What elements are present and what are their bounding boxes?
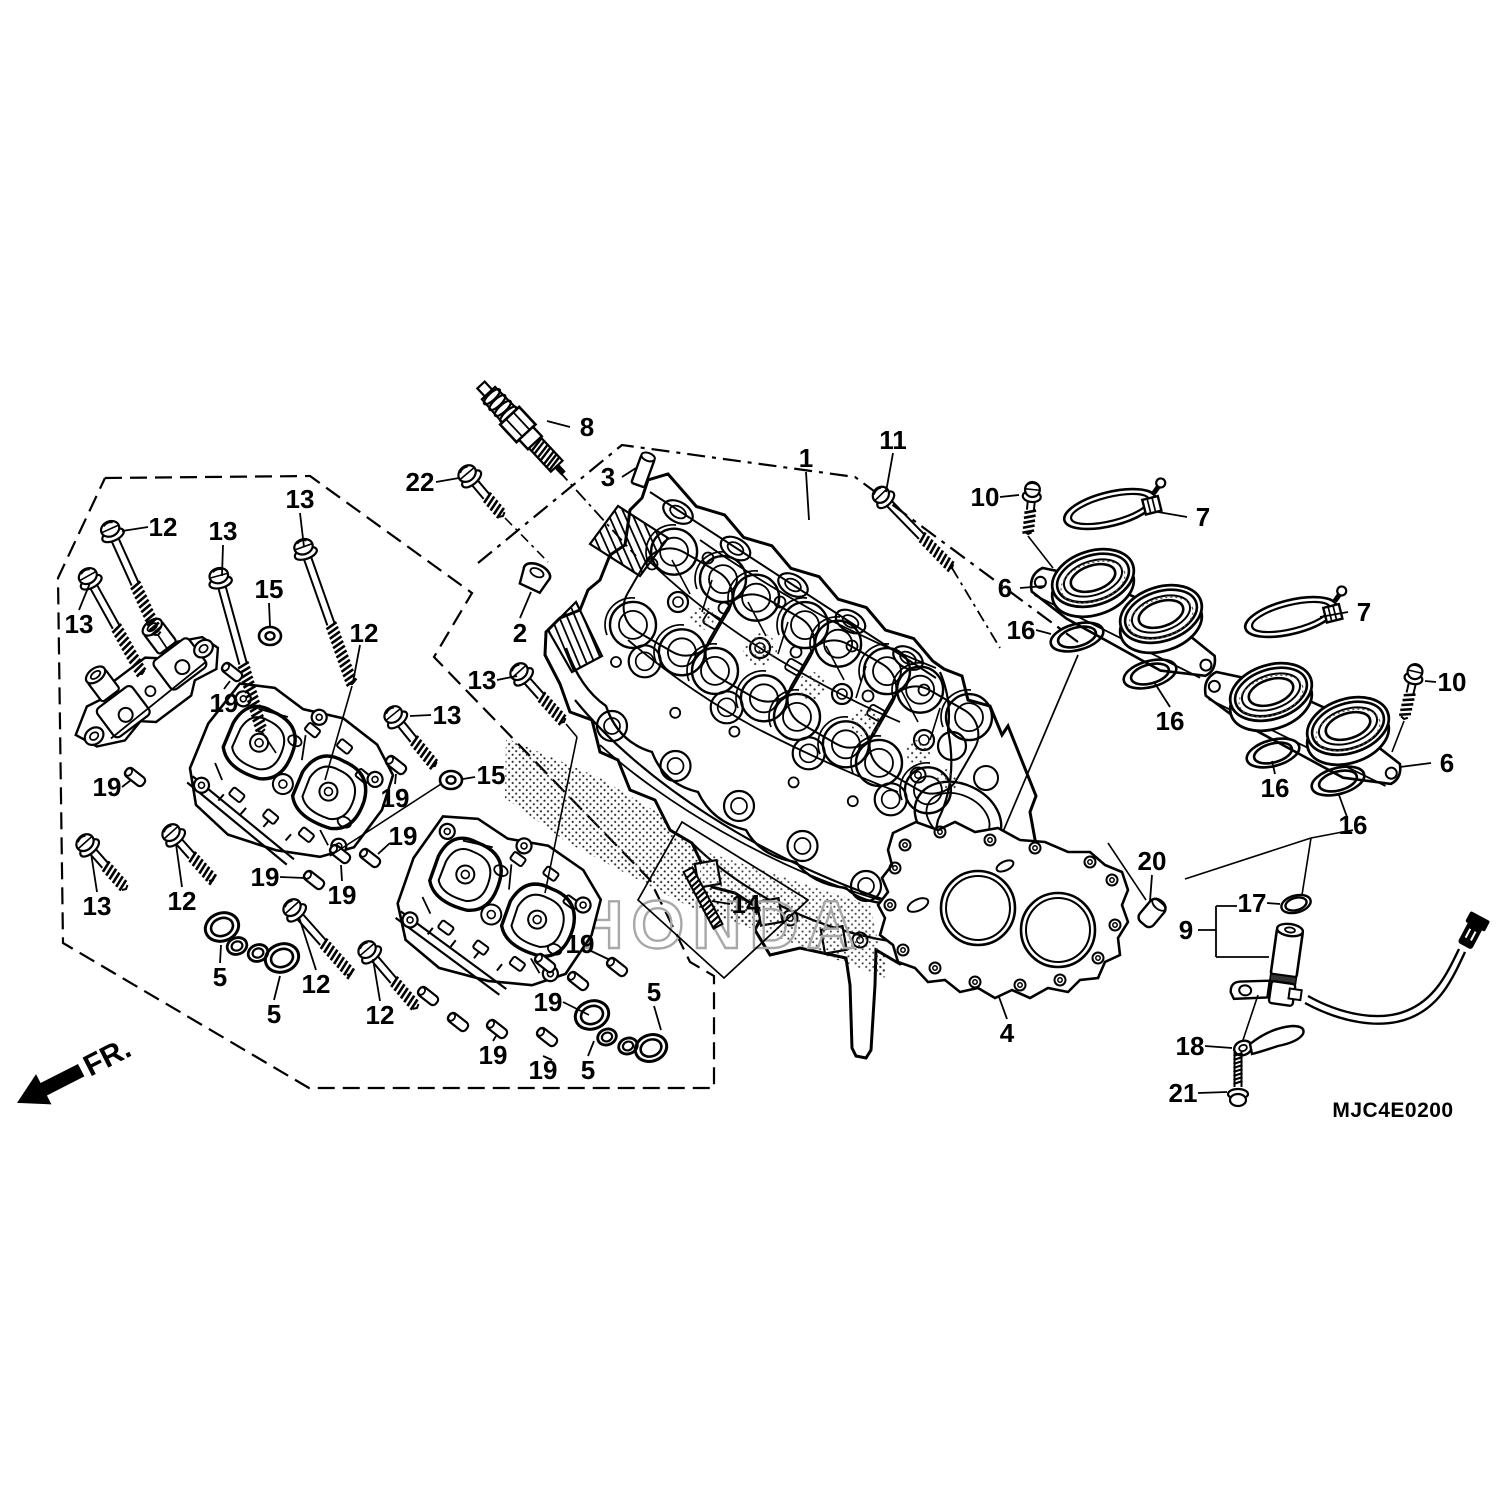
svg-text:MJC4E0200: MJC4E0200 (1332, 1099, 1453, 1122)
svg-text:19: 19 (529, 1055, 558, 1085)
svg-text:19: 19 (389, 821, 418, 851)
svg-text:13: 13 (209, 516, 238, 546)
svg-text:9: 9 (1179, 915, 1193, 945)
svg-text:8: 8 (580, 412, 594, 442)
svg-text:12: 12 (168, 886, 197, 916)
svg-text:1: 1 (799, 443, 813, 473)
svg-text:14: 14 (732, 889, 761, 919)
svg-text:13: 13 (65, 609, 94, 639)
svg-text:15: 15 (255, 574, 284, 604)
svg-text:19: 19 (251, 862, 280, 892)
svg-text:19: 19 (534, 987, 563, 1017)
svg-text:19: 19 (210, 688, 239, 718)
svg-text:21: 21 (1169, 1078, 1198, 1108)
svg-text:10: 10 (971, 482, 1000, 512)
svg-text:16: 16 (1156, 706, 1185, 736)
svg-text:2: 2 (513, 618, 527, 648)
svg-text:12: 12 (350, 618, 379, 648)
svg-text:19: 19 (566, 929, 595, 959)
svg-text:10: 10 (1438, 667, 1467, 697)
svg-text:15: 15 (477, 760, 506, 790)
svg-text:11: 11 (879, 425, 907, 455)
svg-text:7: 7 (1196, 502, 1210, 532)
svg-text:6: 6 (998, 573, 1012, 603)
svg-text:4: 4 (1000, 1018, 1015, 1048)
svg-text:22: 22 (406, 467, 435, 497)
svg-text:13: 13 (433, 700, 462, 730)
svg-text:19: 19 (381, 783, 410, 813)
svg-text:12: 12 (366, 1000, 395, 1030)
svg-text:16: 16 (1007, 615, 1036, 645)
svg-text:19: 19 (93, 772, 122, 802)
svg-text:12: 12 (149, 512, 178, 542)
svg-text:20: 20 (1138, 846, 1167, 876)
svg-text:13: 13 (286, 484, 315, 514)
svg-text:5: 5 (267, 999, 281, 1029)
svg-text:7: 7 (1357, 597, 1371, 627)
svg-text:5: 5 (581, 1055, 595, 1085)
svg-text:19: 19 (479, 1040, 508, 1070)
svg-text:16: 16 (1339, 810, 1368, 840)
svg-text:12: 12 (302, 969, 331, 999)
svg-text:3: 3 (601, 462, 615, 492)
svg-text:13: 13 (83, 891, 112, 921)
svg-text:18: 18 (1176, 1031, 1205, 1061)
svg-text:19: 19 (328, 880, 357, 910)
svg-text:16: 16 (1261, 773, 1290, 803)
svg-text:17: 17 (1238, 888, 1267, 918)
svg-text:5: 5 (213, 962, 227, 992)
svg-text:5: 5 (647, 977, 661, 1007)
svg-text:6: 6 (1440, 748, 1454, 778)
svg-text:13: 13 (468, 665, 497, 695)
